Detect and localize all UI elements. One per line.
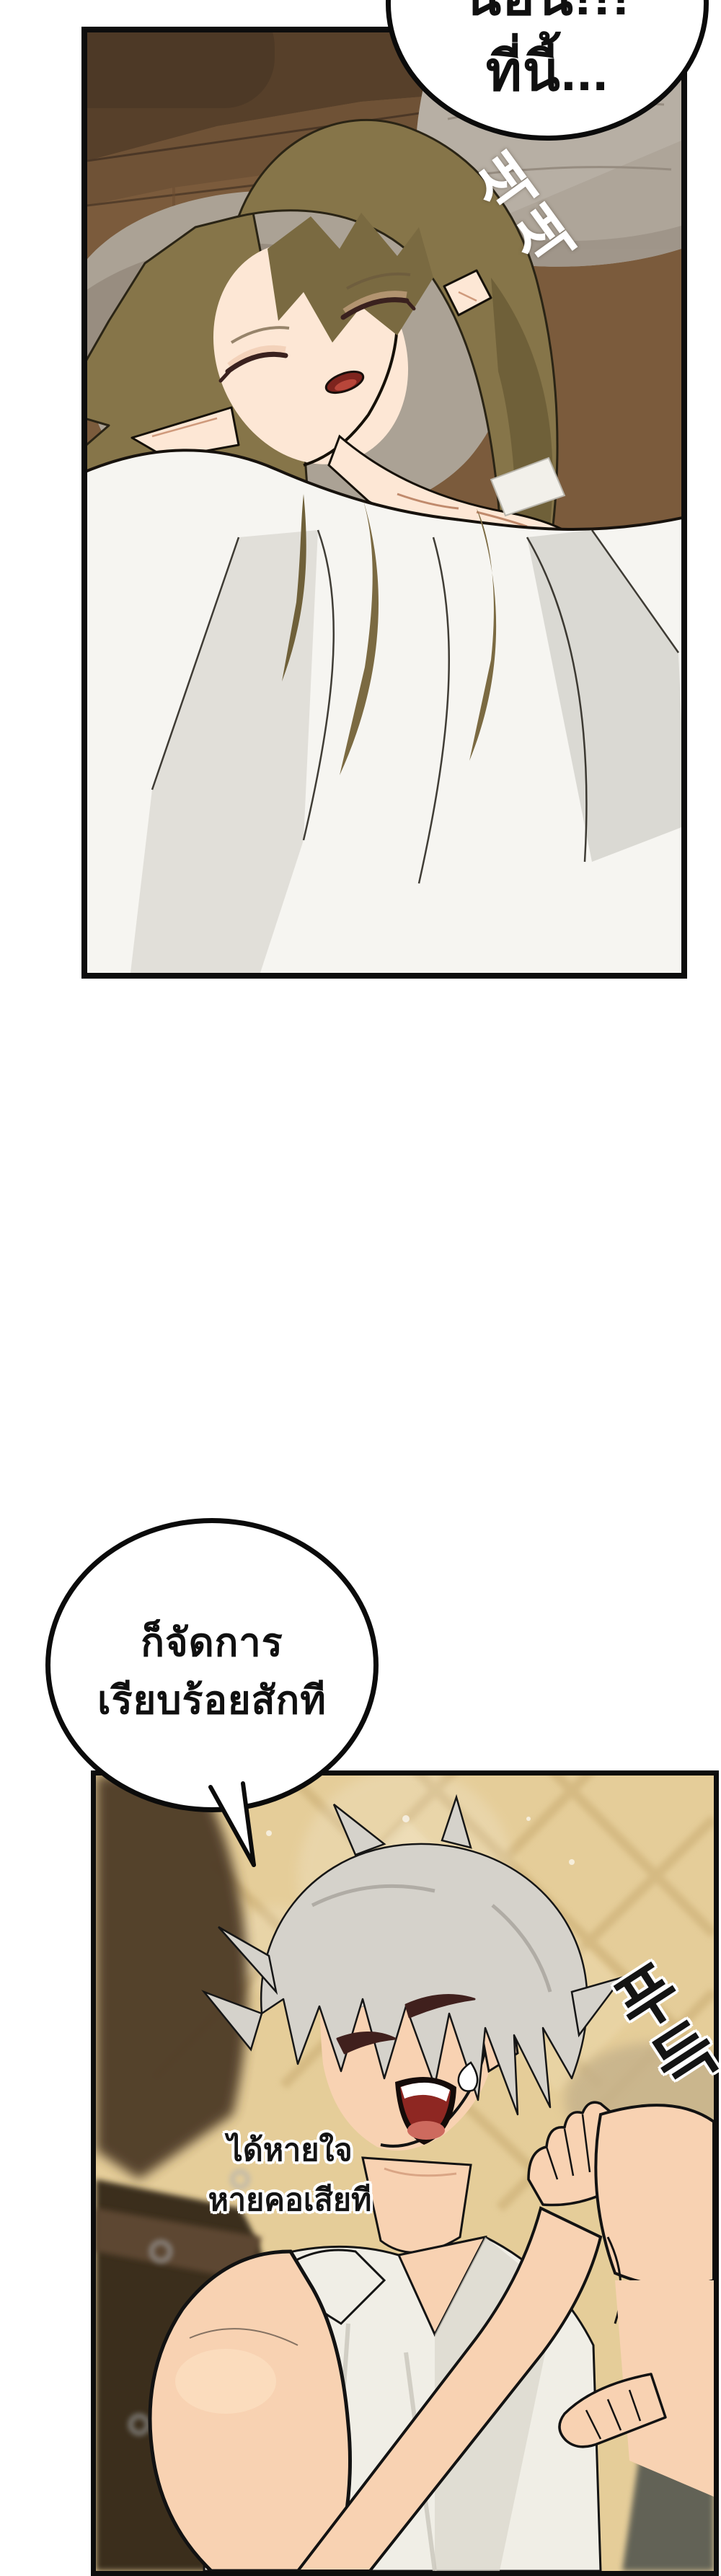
caption-line-1: ได้หายใจ bbox=[189, 2126, 391, 2176]
panel-2-tavern-scene bbox=[91, 1770, 719, 2576]
bubble-2-line-2: เรียบร้อยสักที bbox=[50, 1680, 373, 1721]
panel-1-bed-scene bbox=[81, 27, 687, 979]
speech-bubble-2: ก็จัดการ เรียบร้อยสักที bbox=[45, 1518, 379, 1812]
caption-panel-2: ได้หายใจ หายคอเสียที bbox=[189, 2126, 391, 2226]
bubble-1-line-1: นอน!!! bbox=[391, 0, 704, 25]
bubble-1-line-2: ที่นี้... bbox=[391, 43, 704, 101]
caption-line-2: หายคอเสียที bbox=[189, 2176, 391, 2226]
speech-bubble-2-tail bbox=[203, 1773, 275, 1877]
panel-1-artwork bbox=[87, 32, 681, 973]
comic-page: 색색 นอน!!! ที่นี้... bbox=[0, 0, 721, 2576]
bubble-2-line-1: ก็จัดการ bbox=[50, 1623, 373, 1664]
